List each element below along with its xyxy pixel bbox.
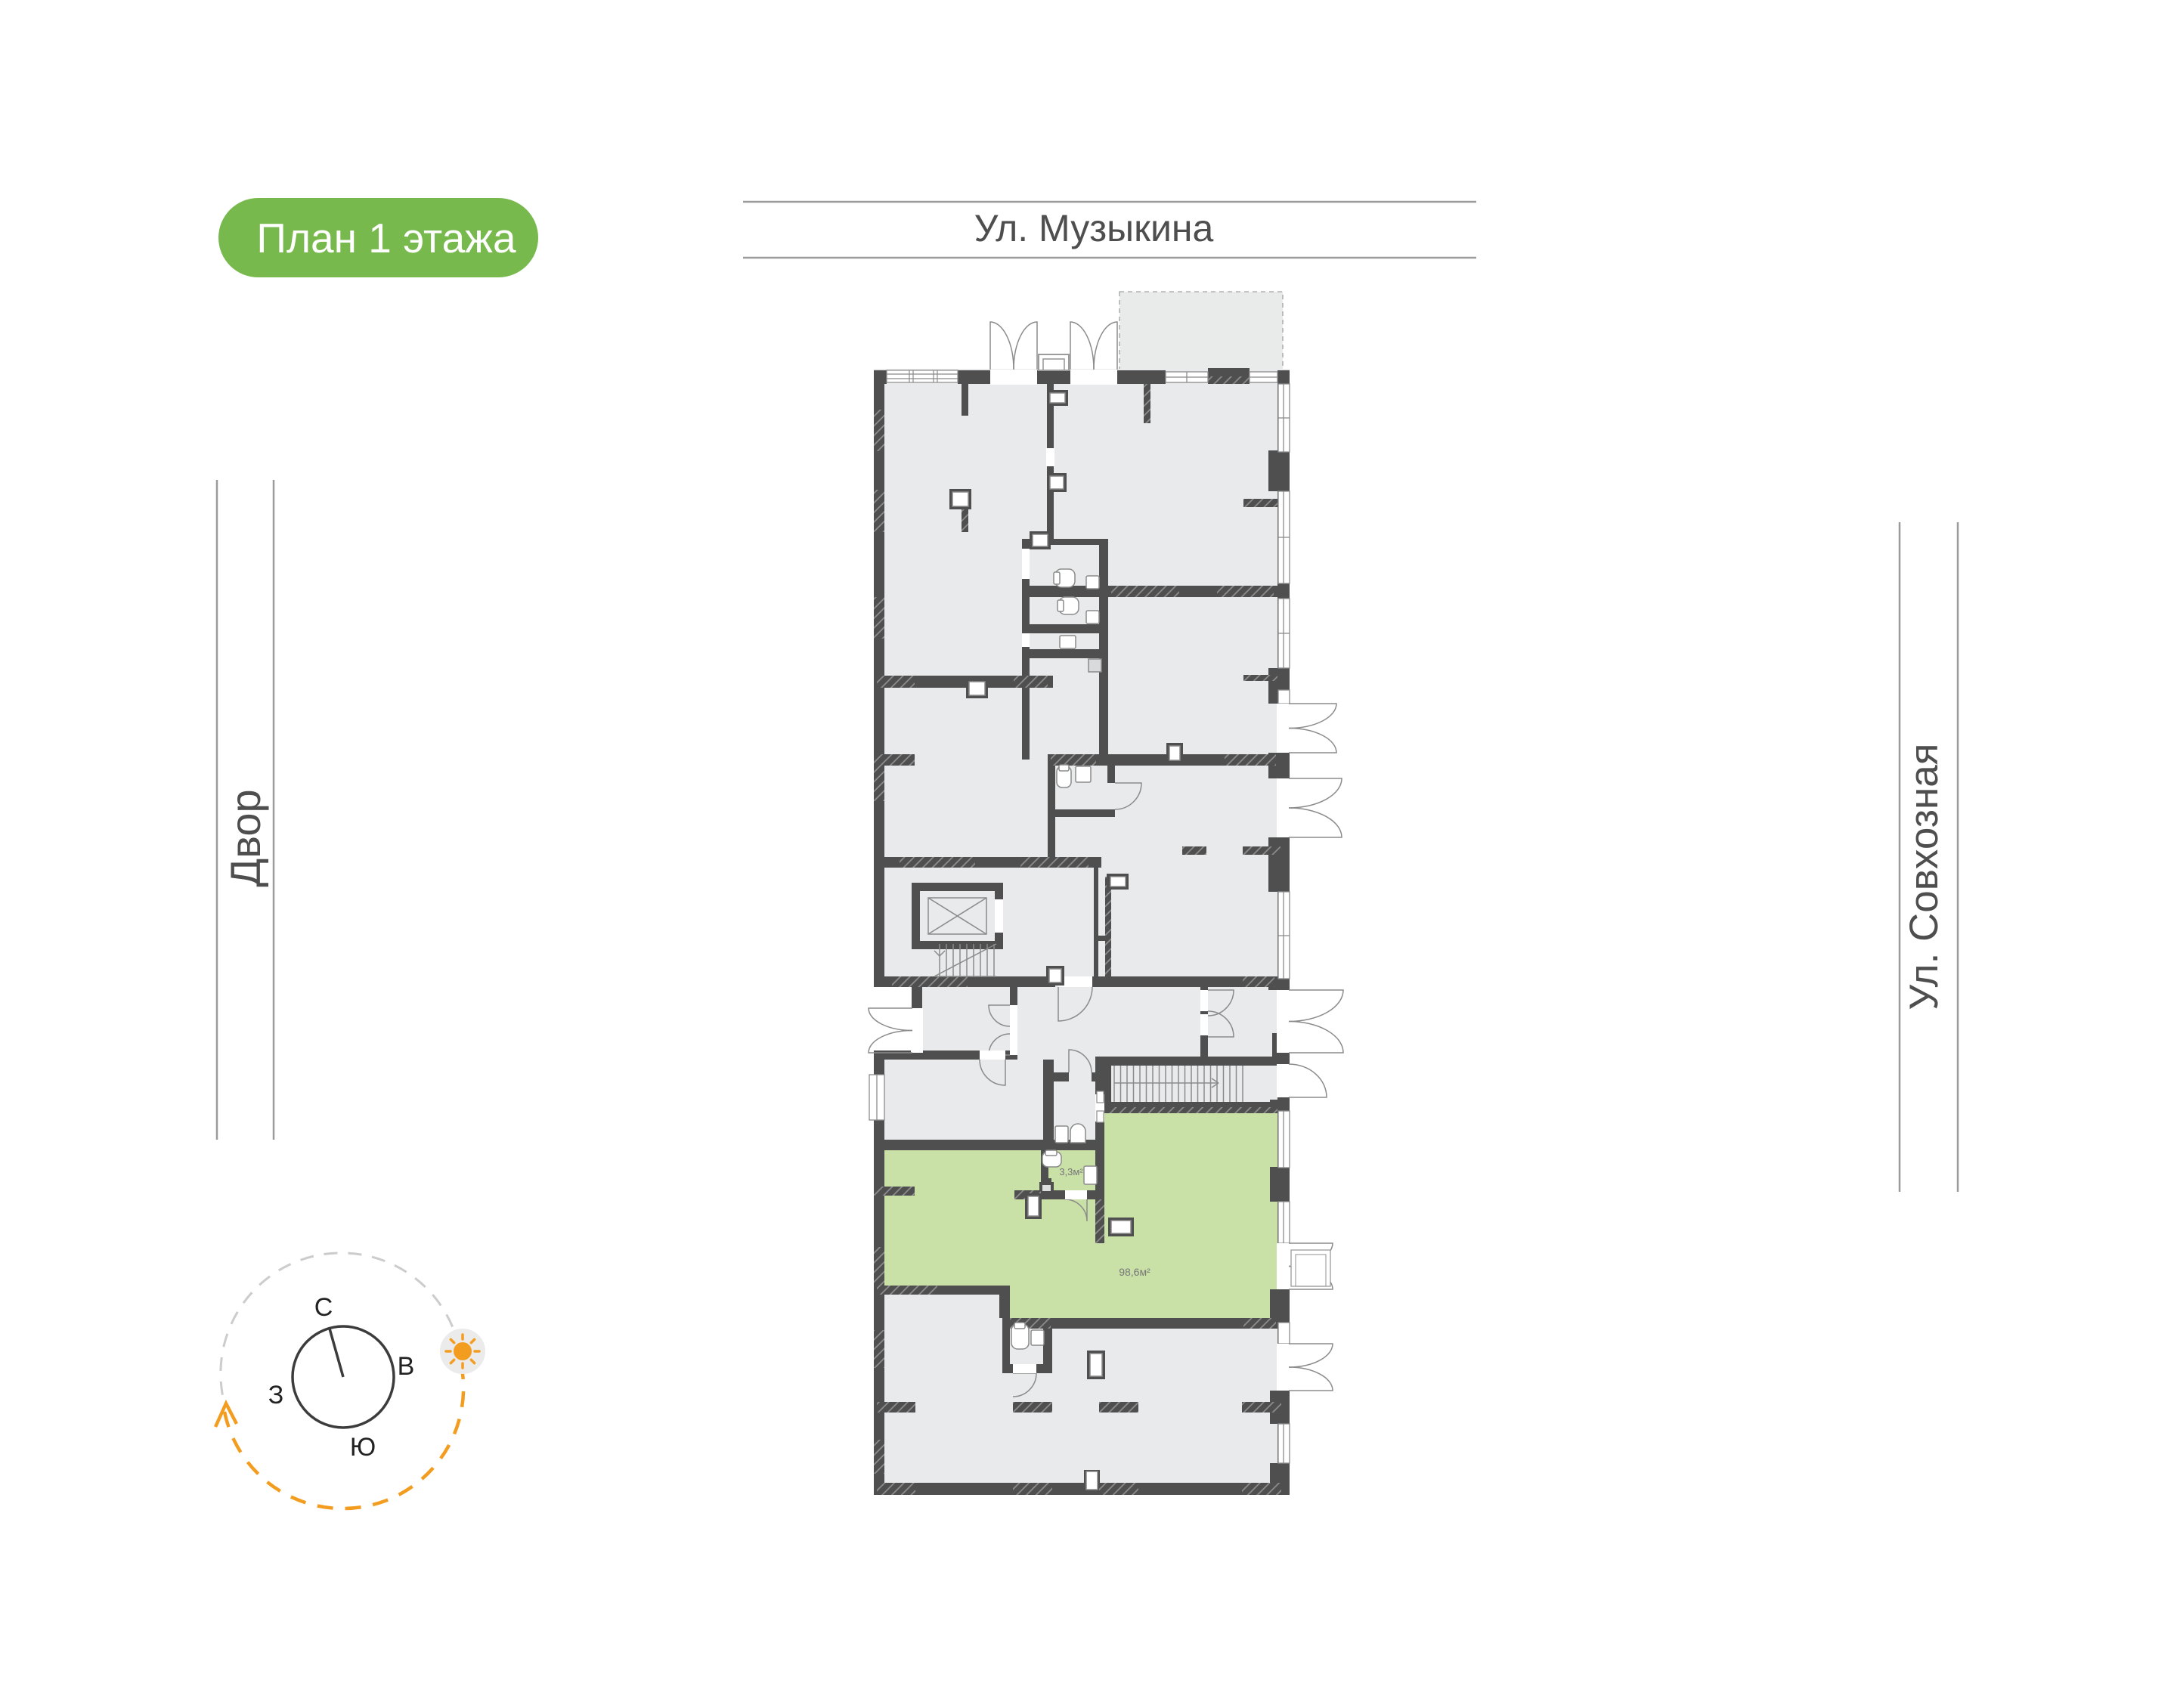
svg-text:3,3м²: 3,3м² — [1059, 1166, 1083, 1177]
svg-text:Ю: Ю — [350, 1433, 376, 1462]
svg-text:План 1 этажа: План 1 этажа — [256, 215, 516, 261]
svg-text:Двор: Двор — [221, 789, 269, 886]
svg-text:З: З — [268, 1381, 284, 1409]
svg-text:Ул. Музыкина: Ул. Музыкина — [974, 207, 1214, 249]
svg-text:98,6м²: 98,6м² — [1119, 1266, 1150, 1278]
svg-text:С: С — [314, 1293, 333, 1322]
svg-text:Ул. Совхозная: Ул. Совхозная — [1902, 744, 1946, 1010]
svg-text:В: В — [398, 1352, 415, 1381]
